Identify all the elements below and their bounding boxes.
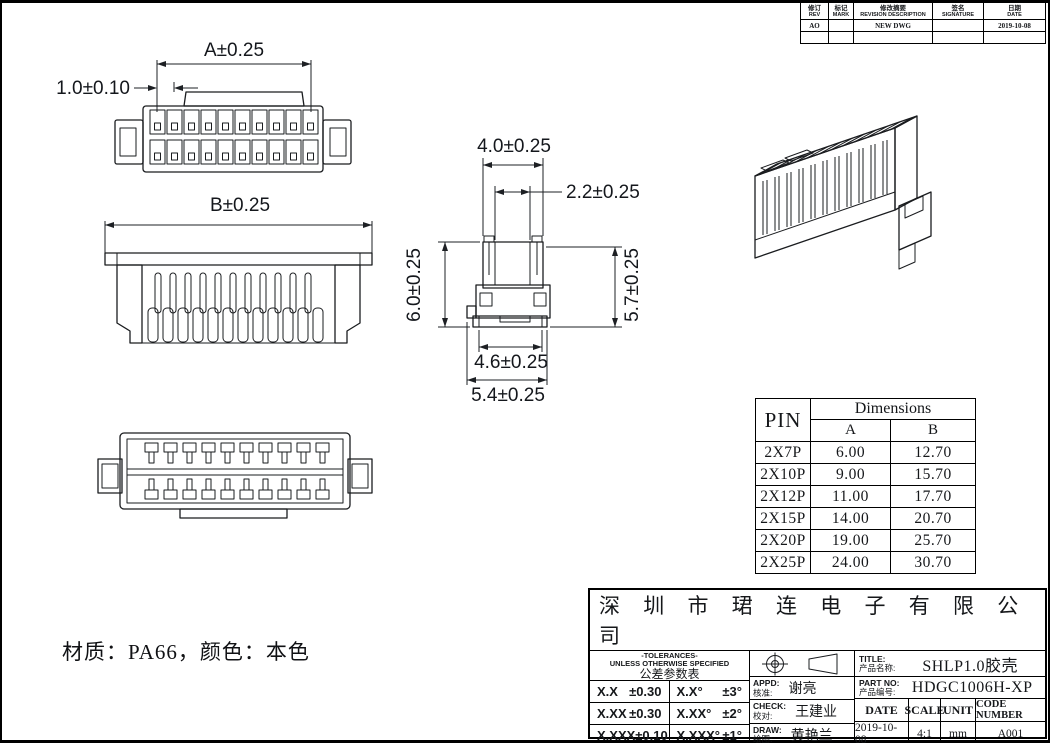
tolerance-table: -TOLERANCES- UNLESS OTHERWISE SPECIFIED … [590, 651, 750, 743]
part-number: HDGC1006H-XP [899, 679, 1045, 697]
checker-name: 王建业 [795, 701, 837, 721]
part-number-field: PART NO:产品编号: HDGC1006H-XP [855, 677, 1045, 699]
dimension-label-base-width: 4.6±0.25 [474, 352, 548, 373]
pin-table: PIN Dimensions A B 2X7P 6.00 12.70 2X10P… [755, 398, 976, 574]
date-value: 2019-10-08 [855, 722, 908, 743]
left-post [117, 265, 142, 343]
tolerance-row: X.XXX±0.10 X.XXX°±1° [590, 725, 749, 743]
table-row: 2X20P 19.00 25.70 [756, 530, 976, 552]
table-row: 2X7P 6.00 12.70 [756, 442, 976, 464]
rear-view: B±0.25 [90, 195, 390, 370]
right-post [335, 265, 360, 343]
tolerance-header: -TOLERANCES- UNLESS OTHERWISE SPECIFIED … [590, 651, 749, 681]
top-view [90, 425, 390, 530]
drawn-by-field: DRAW:绘图: 黄艳兰 [750, 724, 854, 743]
dimension-label-top-width: 4.0±0.25 [477, 136, 551, 157]
left-latch-ear [115, 120, 143, 164]
revision-row: AO NEW DWG 2019-10-08 [801, 20, 1046, 32]
dimension-label-pitch: 1.0±0.10 [56, 78, 130, 99]
table-row: 2X12P 11.00 17.70 [756, 486, 976, 508]
pin-table-header-row: PIN Dimensions [756, 399, 976, 420]
dimension-label-b: B±0.25 [210, 195, 270, 216]
tolerance-row: X.XX±0.30 X.XX°±2° [590, 703, 749, 725]
company-name: 深 圳 市 珺 连 电 子 有 限 公 司 [590, 590, 1045, 651]
product-title: SHLP1.0胶壳 [895, 652, 1045, 676]
bottom-tab [180, 509, 287, 518]
drawing-sheet: 修订REV 标记MARK 修改摘要REVISION DESCRIPTION 签名… [0, 0, 1050, 743]
third-angle-projection-icon [757, 652, 847, 676]
drafter-name: 黄艳兰 [791, 725, 833, 743]
revision-header-row: 修订REV 标记MARK 修改摘要REVISION DESCRIPTION 签名… [801, 3, 1046, 20]
projection-symbol [750, 651, 854, 677]
tolerance-row: X.X±0.30 X.X°±3° [590, 681, 749, 703]
title-block: 深 圳 市 珺 连 电 子 有 限 公 司 -TOLERANCES- UNLES… [588, 588, 1047, 739]
top-tab [184, 92, 304, 106]
revision-table: 修订REV 标记MARK 修改摘要REVISION DESCRIPTION 签名… [800, 2, 1046, 44]
scale-value: 4:1 [908, 722, 940, 743]
revision-row-empty [801, 32, 1046, 44]
dimension-label-height-left: 6.0±0.25 [404, 248, 425, 322]
code-number-value: A001 [975, 722, 1045, 743]
right-latch-ear [323, 120, 351, 164]
approver-name: 谢亮 [788, 678, 816, 698]
dsu-header-row: DATE SCALE UNIT CODE NUMBER [855, 699, 1045, 722]
front-view: A±0.25 1.0±0.10 [40, 40, 390, 200]
dsu-value-row: 2019-10-08 4:1 mm A001 [855, 722, 1045, 743]
dimension-label-a: A±0.25 [204, 40, 264, 61]
dimension-label-height-right: 5.7±0.25 [622, 248, 643, 322]
dimension-label-inner-width: 2.2±0.25 [566, 182, 640, 203]
title-field: TITLE:产品名称: SHLP1.0胶壳 [855, 651, 1045, 677]
checked-by-field: CHECK:校对: 王建业 [750, 700, 854, 723]
material-note: 材质：PA66，颜色：本色 [62, 636, 310, 666]
table-row: 2X15P 14.00 20.70 [756, 508, 976, 530]
unit-value: mm [940, 722, 975, 743]
isometric-view [725, 88, 960, 283]
approved-by-field: APPD:核准: 谢亮 [750, 677, 854, 700]
table-row: 2X10P 9.00 15.70 [756, 464, 976, 486]
table-row: 2X25P 24.00 30.70 [756, 552, 976, 574]
dimension-label-overall-width: 5.4±0.25 [471, 385, 545, 406]
side-view: 4.0±0.25 2.2±0.25 6.0±0.25 5.7±0.25 4.6±… [390, 130, 680, 415]
